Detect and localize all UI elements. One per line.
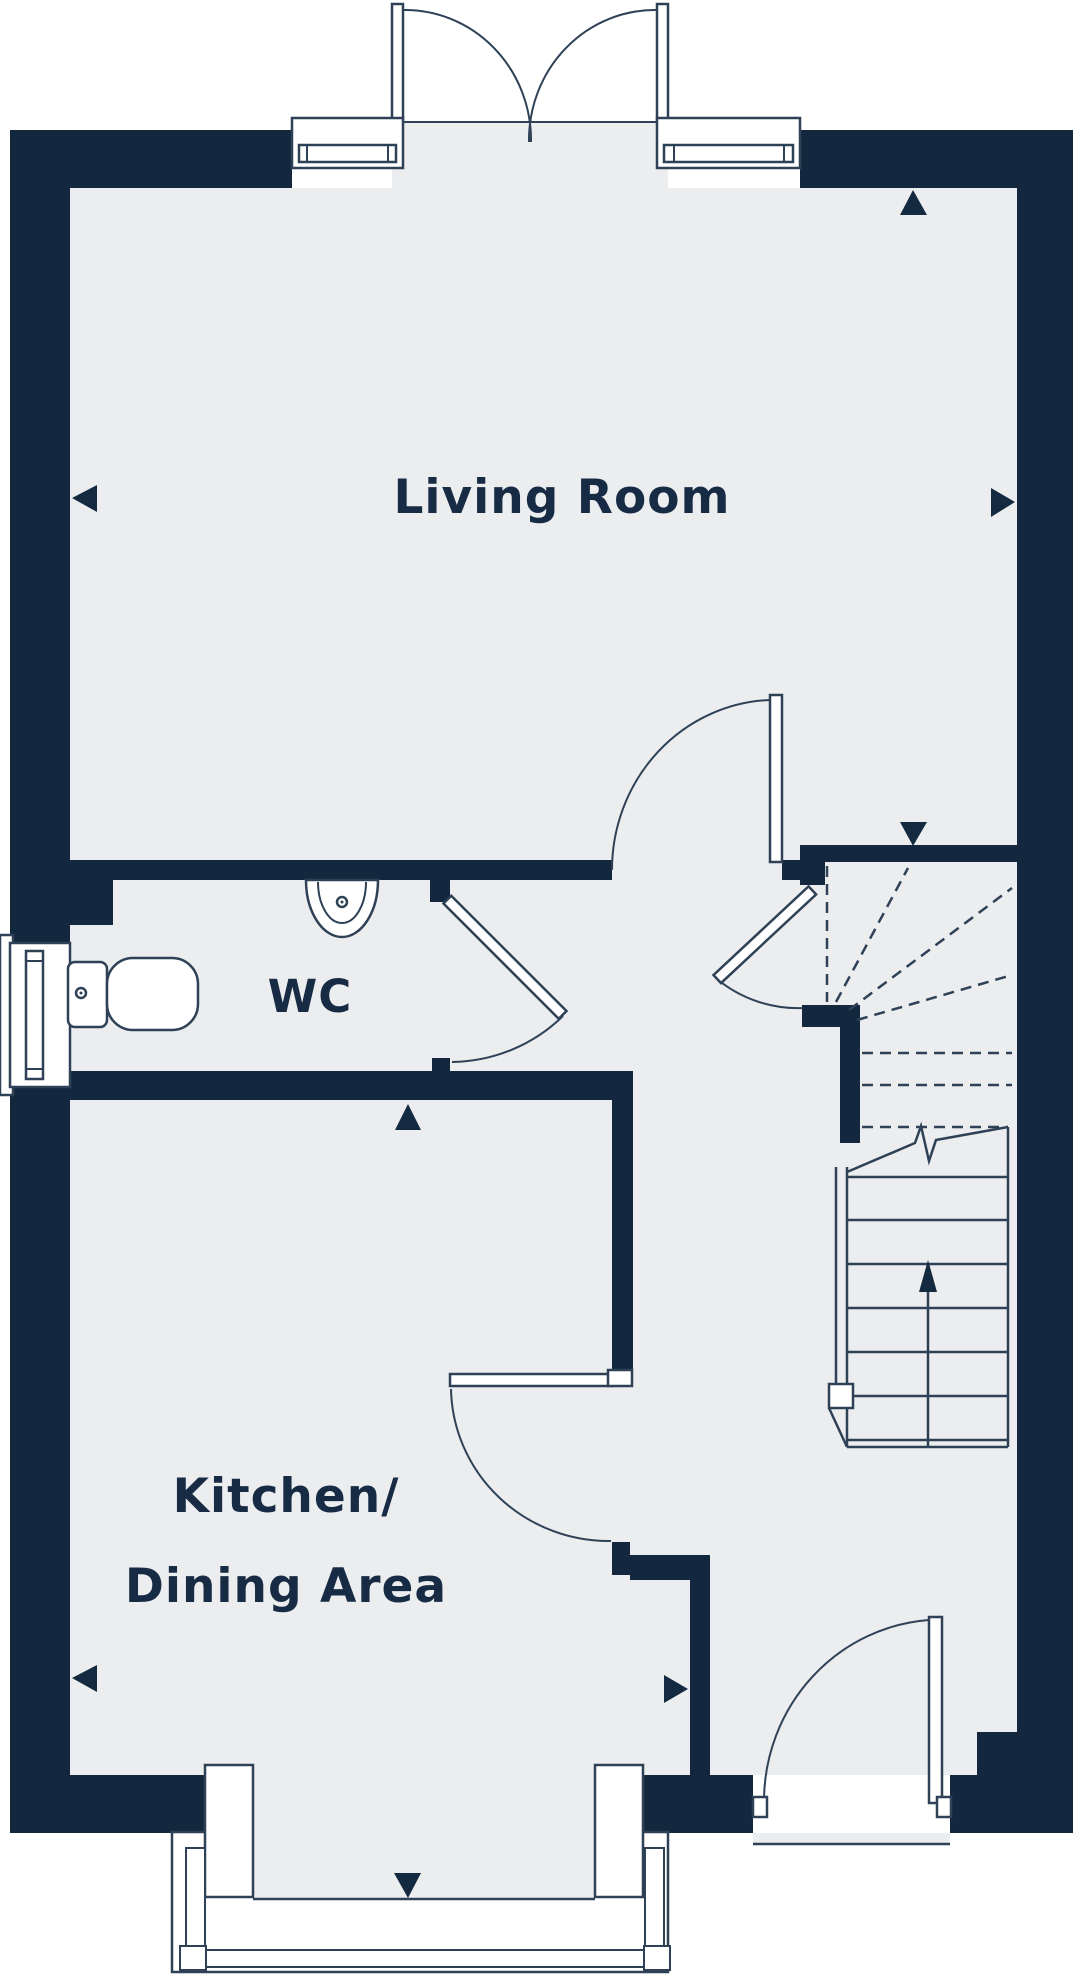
kitchen-door-leaf xyxy=(450,1374,612,1386)
front-door-leaf xyxy=(929,1617,942,1803)
window-top-left xyxy=(292,118,403,168)
living-room-label: Living Room xyxy=(393,470,730,525)
toilet-icon xyxy=(68,958,198,1030)
floor-plan-page: Living Room WC Kitchen/ Dining Area xyxy=(0,0,1080,1976)
floor-plan-canvas: Living Room WC Kitchen/ Dining Area xyxy=(0,0,1080,1976)
wall-kitchen-hall-vertical xyxy=(690,1580,710,1775)
kitchen-label-line1: Kitchen/ xyxy=(173,1469,400,1524)
window-wc-left xyxy=(0,935,70,1095)
wall-wc-kitchen xyxy=(10,1071,633,1100)
bay-window-bottom xyxy=(172,1765,670,1972)
living-room-door-leaf xyxy=(770,695,782,862)
front-door-hinge-right xyxy=(937,1797,951,1817)
wall-wc-pier xyxy=(70,872,113,925)
wall-bottom-mid xyxy=(643,1775,753,1833)
window-top-right xyxy=(657,118,800,168)
bay-pier-right xyxy=(595,1765,643,1897)
bay-floor xyxy=(253,1775,595,1899)
wall-living-hall xyxy=(70,860,612,880)
bay-corner-left xyxy=(180,1946,206,1970)
wall-cupboard-stub xyxy=(800,862,825,885)
wall-left-lower xyxy=(10,1087,70,1833)
bay-pier-left xyxy=(205,1765,253,1897)
wall-bottom-right xyxy=(950,1775,1073,1833)
front-door-hinge-left xyxy=(753,1797,767,1817)
bay-glazing-right xyxy=(645,1848,664,1948)
kitchen-label-line2: Dining Area xyxy=(125,1559,447,1614)
floor-main xyxy=(70,188,1017,1775)
wall-kitchen-door-jamb xyxy=(612,1542,630,1575)
window-wc-glazing xyxy=(26,951,43,1079)
french-door-leaf-left xyxy=(392,4,403,122)
window-top-right-glazing xyxy=(664,145,793,162)
wall-stairs-newel-vertical xyxy=(840,1027,860,1143)
toilet-bowl xyxy=(107,958,198,1030)
stairs-newel-post xyxy=(829,1384,853,1408)
toilet-cistern xyxy=(68,962,107,1027)
floor-front-threshold xyxy=(753,1833,950,1844)
bay-glazing-left xyxy=(186,1848,205,1948)
wall-living-hall-right xyxy=(782,860,800,880)
french-door-leaf-right xyxy=(657,4,668,122)
wc-label: WC xyxy=(268,970,353,1023)
wall-right xyxy=(1017,130,1073,1775)
wall-right-step xyxy=(977,1732,1019,1777)
wall-living-stairs xyxy=(800,845,1017,862)
wall-kitchen-east xyxy=(612,1100,633,1375)
bay-glazing-bottom xyxy=(205,1950,645,1967)
wall-bottom-left xyxy=(10,1775,205,1833)
window-top-left-glazing xyxy=(299,145,396,162)
bay-corner-right xyxy=(644,1946,670,1970)
kitchen-door-jamb-trim xyxy=(608,1370,632,1386)
wall-left-upper xyxy=(10,130,70,943)
wall-kitchen-hall-horizontal xyxy=(630,1555,710,1580)
